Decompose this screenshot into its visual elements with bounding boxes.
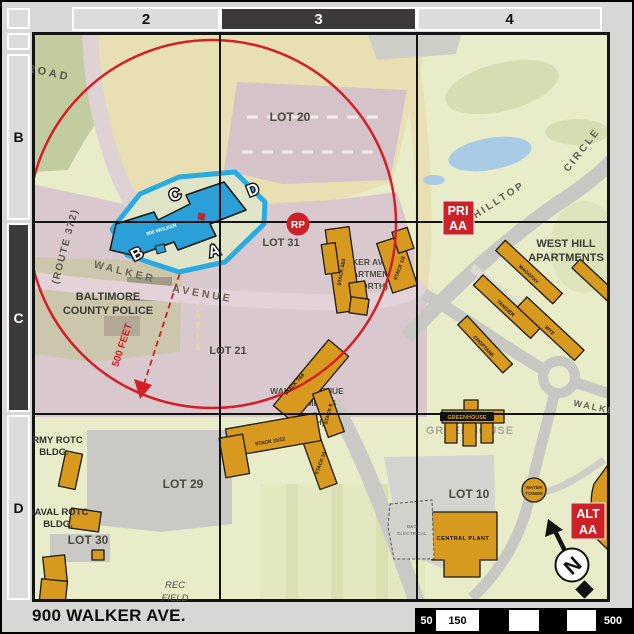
- grid-column-4: 4: [417, 7, 602, 31]
- grid-side-spacer: [7, 33, 30, 50]
- scale-seg-4: [509, 610, 539, 631]
- campus-map-page: { "grid": { "columns": ["2", "3", "4"], …: [0, 0, 634, 634]
- grid-column-2-label: 2: [142, 11, 150, 28]
- pri-aa-marker[interactable]: PRI AA: [443, 201, 474, 235]
- water-tower-label-2: TOWER: [525, 491, 543, 497]
- building-sw-2: [39, 579, 68, 602]
- building-notch-2: [155, 244, 166, 254]
- grid-row-b: B: [7, 54, 30, 220]
- electrical-label-1: B&G: [407, 524, 417, 530]
- alt-aa-label-1: ALT: [576, 507, 600, 521]
- lot21-label: LOT 21: [209, 345, 246, 357]
- lot20-label: LOT 20: [270, 110, 311, 124]
- lot31-label: LOT 31: [262, 237, 299, 249]
- rp-marker[interactable]: RP: [287, 213, 310, 236]
- west-hill-label-1: WEST HILL: [536, 238, 596, 250]
- scale-seg-50: 50: [417, 610, 436, 631]
- scale-label-500: 500: [604, 615, 622, 627]
- building-center-dot: [197, 213, 205, 221]
- electrical-label-2: ELECTRICAL: [397, 531, 427, 537]
- police-label-1: BALTIMORE: [76, 291, 141, 303]
- building-sw-3: [92, 550, 104, 560]
- west-hill-label-2: APARTMENTS: [528, 252, 604, 264]
- grid-row-d: D: [7, 415, 30, 600]
- rec-field-label-2: FIELD: [162, 593, 189, 602]
- pri-aa-label-2: AA: [449, 219, 467, 233]
- scale-bar: 50 150 500: [415, 608, 632, 633]
- water-tower-label-1: WATER: [526, 485, 544, 491]
- rp-marker-label: RP: [291, 220, 305, 231]
- grid-row-b-label: B: [13, 129, 23, 145]
- grid-row-c-label: C: [13, 310, 23, 326]
- alt-aa-marker[interactable]: ALT AA: [571, 503, 605, 539]
- naval-rotc-label-2: BLDG.: [43, 519, 73, 530]
- campus-map-svg: GREENHOUSE WALKER AVENUE APARTMENTS (NOR…: [32, 32, 610, 602]
- naval-rotc-label-1: NAVAL ROTC: [32, 507, 88, 518]
- grid-column-2: 2: [72, 7, 220, 31]
- grid-column-4-label: 4: [505, 11, 513, 28]
- scale-label-150: 150: [448, 615, 466, 627]
- greenhouse-banner-label: GREENHOUSE: [447, 415, 486, 421]
- grid-column-3-label: 3: [314, 11, 322, 28]
- alt-aa-label-2: AA: [579, 523, 597, 537]
- pond-small: [423, 175, 445, 185]
- grid-row-c-highlighted: C: [7, 223, 30, 412]
- grid-corner-box: [7, 8, 30, 29]
- scale-seg-3: [479, 610, 509, 631]
- pri-aa-label-1: PRI: [448, 204, 469, 218]
- building-small-north: [349, 297, 369, 315]
- police-label-2: COUNTY POLICE: [63, 305, 153, 317]
- map-canvas[interactable]: GREENHOUSE WALKER AVENUE APARTMENTS (NOR…: [32, 32, 610, 602]
- scale-seg-5: [539, 610, 567, 631]
- lot30-label: LOT 30: [68, 533, 109, 547]
- central-plant-label: CENTRAL PLANT: [437, 536, 490, 542]
- scale-label-50: 50: [420, 615, 432, 627]
- scale-seg-150: 150: [436, 610, 479, 631]
- rec-field-label-1: REC: [165, 580, 185, 591]
- army-rotc-label-1: ARMY ROTC: [32, 435, 83, 446]
- grid-column-3-highlighted: 3: [220, 7, 417, 31]
- scale-seg-500: 500: [596, 610, 630, 631]
- army-rotc-label-2: BLDG.: [39, 447, 69, 458]
- scale-seg-6: [567, 610, 596, 631]
- lot10-label: LOT 10: [449, 487, 490, 501]
- grid-row-d-label: D: [13, 500, 23, 516]
- lot29-label: LOT 29: [163, 477, 204, 491]
- lot29-area: [87, 430, 232, 532]
- map-address-title: 900 WALKER AVE.: [32, 606, 186, 626]
- lot20-area: [224, 82, 407, 184]
